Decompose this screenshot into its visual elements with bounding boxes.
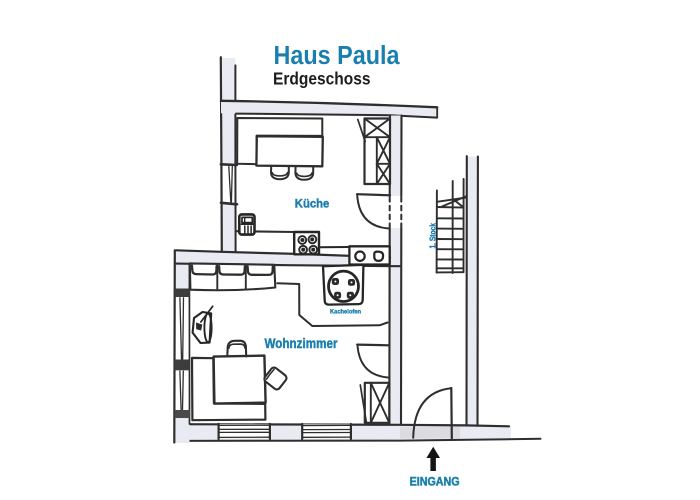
- svg-text:Haus Paula: Haus Paula: [274, 42, 401, 70]
- svg-text:Wohnzimmer: Wohnzimmer: [265, 336, 339, 351]
- svg-text:Erdgeschoss: Erdgeschoss: [273, 69, 371, 89]
- svg-text:Küche: Küche: [295, 196, 330, 210]
- svg-text:EINGANG: EINGANG: [410, 474, 460, 488]
- svg-text:1. Stock: 1. Stock: [428, 223, 437, 249]
- svg-text:Kachelofen: Kachelofen: [330, 309, 361, 316]
